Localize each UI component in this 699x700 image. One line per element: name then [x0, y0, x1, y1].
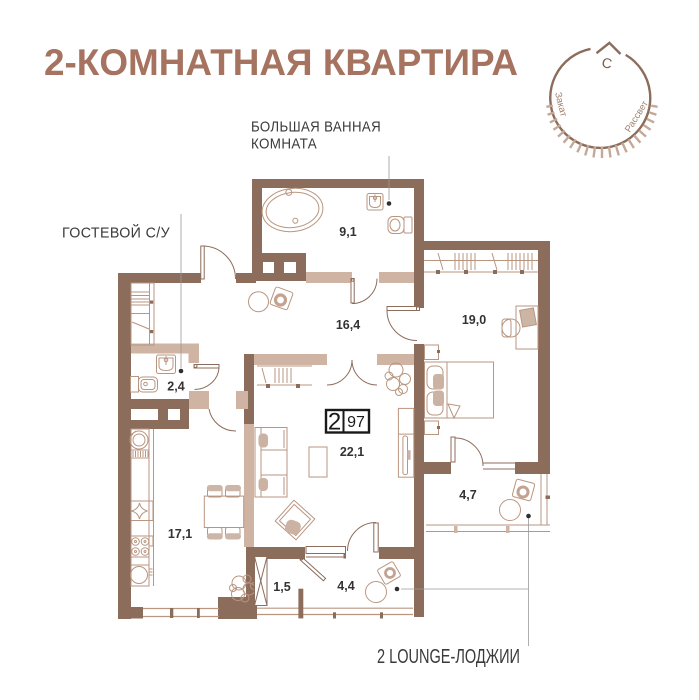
svg-text:Закат: Закат — [552, 91, 569, 118]
svg-text:16,4: 16,4 — [336, 318, 360, 332]
svg-text:ГОСТЕВОЙ С/У: ГОСТЕВОЙ С/У — [62, 224, 170, 242]
svg-text:9,1: 9,1 — [339, 225, 356, 239]
svg-text:4,4: 4,4 — [337, 579, 354, 593]
svg-text:4,7: 4,7 — [459, 488, 476, 502]
svg-text:97: 97 — [347, 414, 365, 431]
svg-text:19,0: 19,0 — [462, 313, 486, 327]
svg-text:2-КОМНАТНАЯ КВАРТИРА: 2-КОМНАТНАЯ КВАРТИРА — [44, 42, 518, 83]
svg-text:22,1: 22,1 — [340, 445, 364, 459]
svg-text:1,5: 1,5 — [273, 580, 290, 594]
svg-text:2,4: 2,4 — [167, 380, 184, 394]
svg-text:2 LOUNGE-ЛОДЖИИ: 2 LOUNGE-ЛОДЖИИ — [377, 646, 520, 668]
svg-text:КОМНАТА: КОМНАТА — [251, 135, 317, 152]
svg-text:БОЛЬШАЯ ВАННАЯ: БОЛЬШАЯ ВАННАЯ — [251, 119, 381, 136]
svg-text:17,1: 17,1 — [168, 527, 192, 541]
svg-text:2: 2 — [328, 409, 341, 436]
svg-text:С: С — [601, 54, 614, 72]
